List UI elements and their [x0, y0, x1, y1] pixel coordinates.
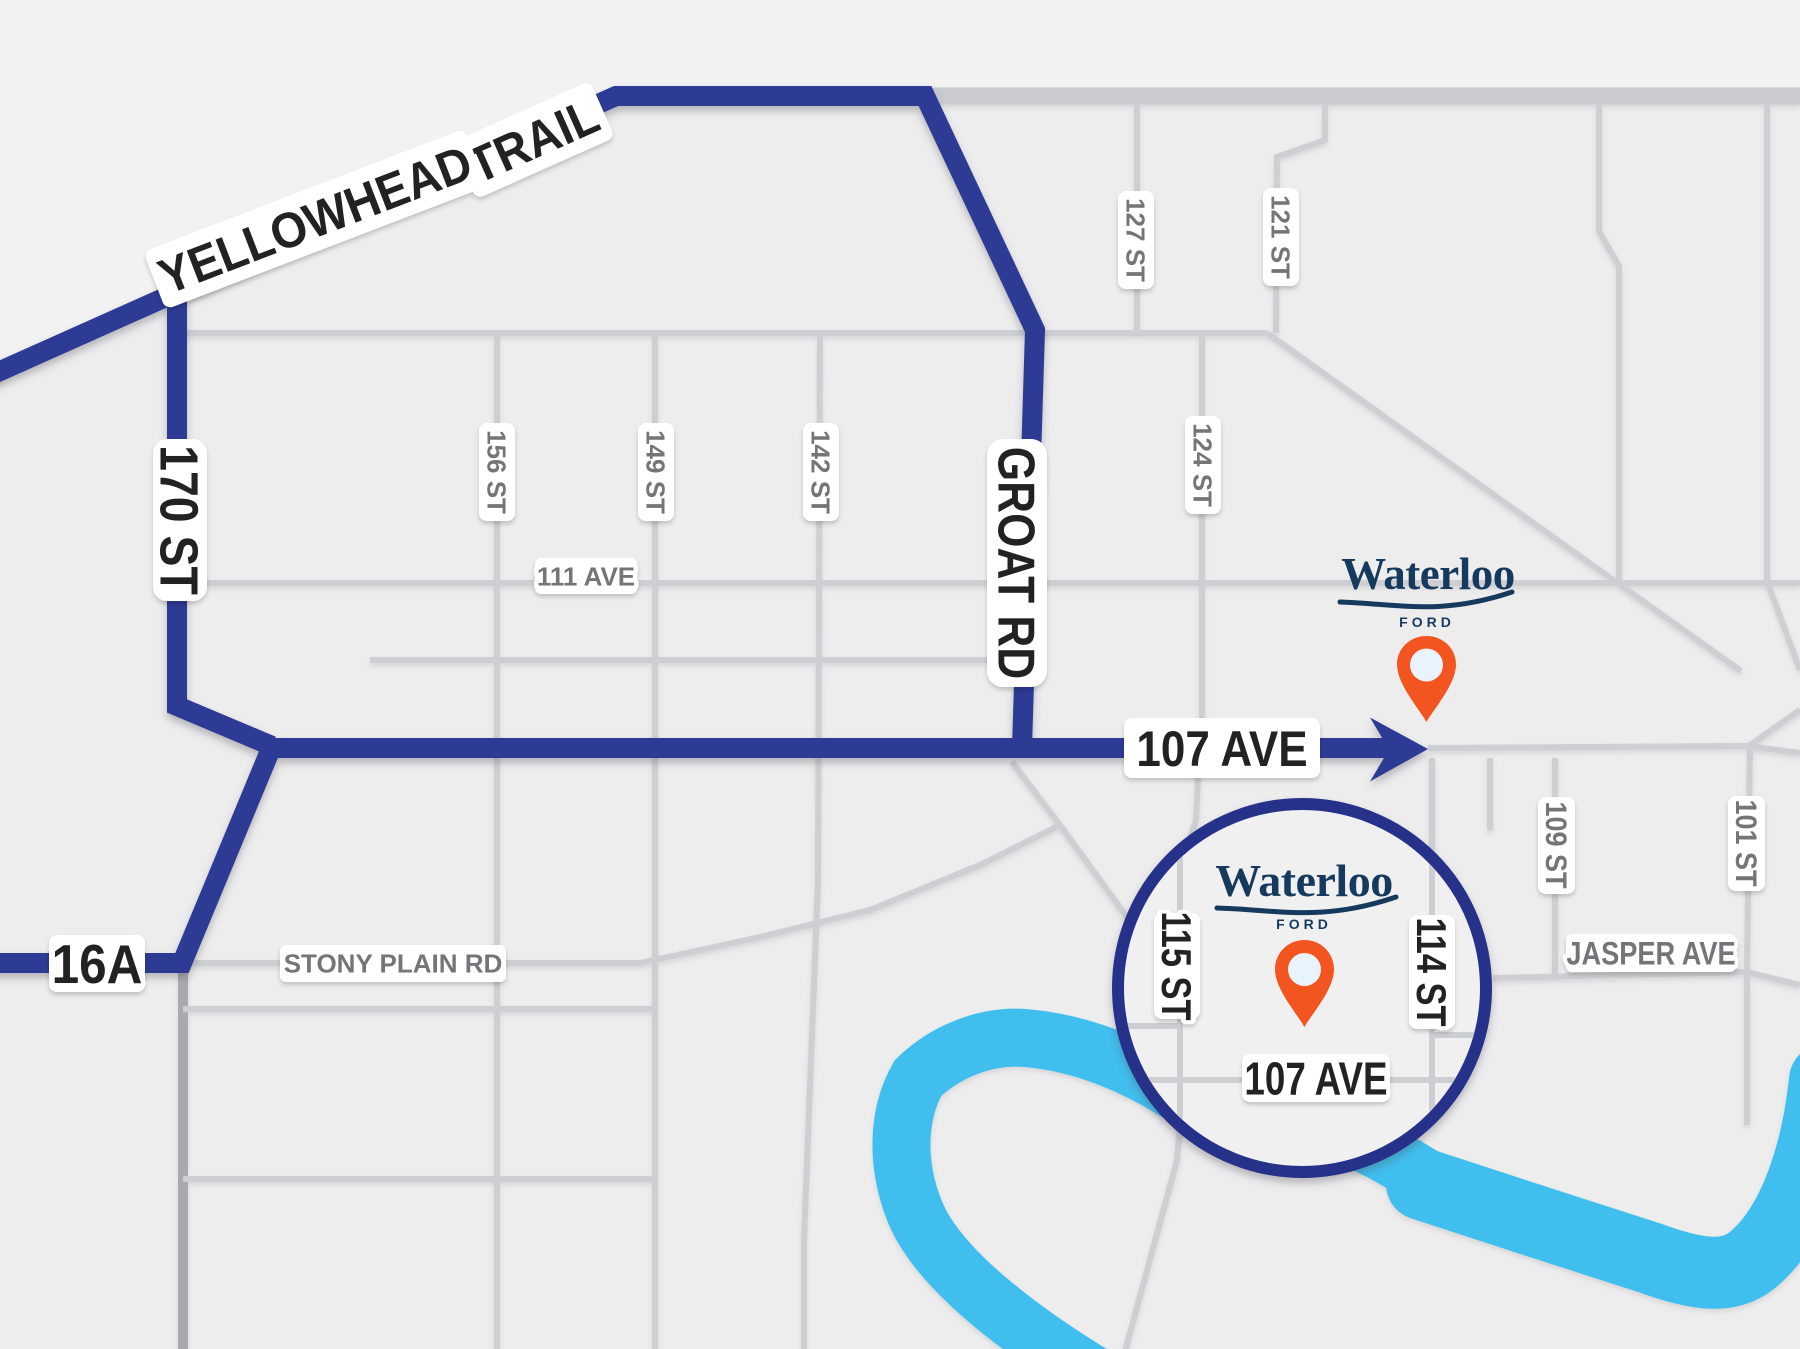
svg-text:115 ST: 115 ST	[1152, 911, 1199, 1021]
svg-text:FORD: FORD	[1399, 614, 1455, 630]
svg-text:114 ST: 114 ST	[1407, 917, 1454, 1027]
svg-text:107 AVE: 107 AVE	[1136, 720, 1307, 776]
svg-text:124 ST: 124 ST	[1188, 423, 1218, 507]
svg-text:142 ST: 142 ST	[806, 430, 836, 514]
svg-text:16A: 16A	[52, 934, 143, 995]
svg-text:121 ST: 121 ST	[1266, 195, 1296, 279]
svg-text:STONY PLAIN RD: STONY PLAIN RD	[284, 948, 503, 978]
svg-text:107 AVE: 107 AVE	[1244, 1053, 1387, 1105]
svg-text:170 ST: 170 ST	[149, 445, 210, 595]
svg-text:127 ST: 127 ST	[1121, 198, 1151, 282]
svg-text:GROAT RD: GROAT RD	[986, 447, 1044, 679]
svg-text:Waterloo: Waterloo	[1341, 549, 1514, 599]
svg-text:101 ST: 101 ST	[1729, 800, 1763, 888]
svg-text:FORD: FORD	[1276, 916, 1332, 932]
svg-text:156 ST: 156 ST	[482, 430, 512, 514]
svg-text:JASPER AVE: JASPER AVE	[1566, 937, 1735, 973]
svg-text:Waterloo: Waterloo	[1215, 855, 1392, 906]
svg-text:111 AVE: 111 AVE	[537, 561, 635, 591]
svg-text:109 ST: 109 ST	[1539, 802, 1573, 890]
svg-text:149 ST: 149 ST	[641, 430, 671, 514]
